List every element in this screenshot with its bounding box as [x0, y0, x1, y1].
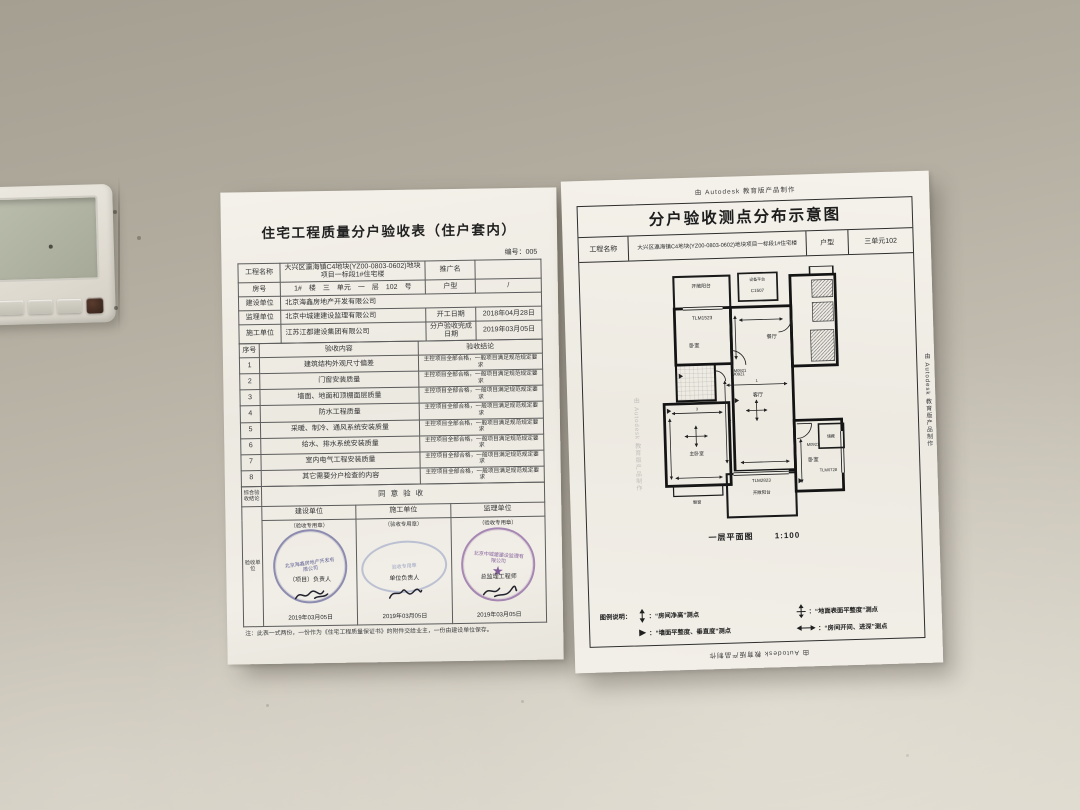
item-no: 6: [241, 438, 261, 454]
seal-note: （验收专用章）: [453, 520, 542, 528]
room-label-balcony-top: 开敞阳台: [691, 282, 711, 290]
photo-scene: 住宅工程质量分户验收表（住户套内） 编号：005 工程名称 大兴区瀛海镇C4地块…: [0, 0, 1080, 810]
span-arrow: [725, 381, 727, 463]
builder-sign-cell: （验收专用章） 北京海鑫房地产开发有限公司 （项目）负责人 2019年03月05…: [262, 519, 358, 626]
floorplan-svg: 开敞阳台 TLM1523 卧室 M0921 设备平台 C1507 餐厅 客厅 M…: [638, 265, 862, 530]
plan-scale: 1:100: [775, 531, 801, 541]
measurement-plan-document: 由 Autodesk 教育版产品制作 分户验收测点分布示意图 工程名称 大兴区瀛…: [561, 171, 943, 674]
item-no: 4: [240, 406, 260, 422]
unit-col-builder: 建设单位: [262, 505, 357, 520]
legend-text: ：“房间净高”测点: [649, 610, 700, 620]
measure-num: 1: [756, 379, 758, 383]
room-height-symbol-icon: [637, 608, 646, 623]
legend-title: 图例说明：: [600, 611, 638, 621]
room-label-dining: 餐厅: [766, 332, 777, 340]
balcony-top-outline: [673, 276, 730, 310]
signature: [292, 586, 330, 605]
plan-type-label: 户型: [806, 230, 849, 255]
wall-seam: [118, 176, 120, 332]
plan-type-value: 三单元102: [848, 228, 913, 254]
summary-label: 综合验收结论: [241, 486, 261, 506]
floorplan-area: 开敞阳台 TLM1523 卧室 M0921 设备平台 C1507 餐厅 客厅 M…: [580, 263, 925, 647]
col-header-no: 序号: [239, 344, 259, 358]
form-footnote: 注：此表一式两份，一份作为《住宅工程质量保证书》的附件交给业主，一份由建设单位保…: [245, 627, 545, 639]
span-arrow: [741, 461, 789, 462]
start-date-label: 开工日期: [426, 307, 476, 322]
wall-speck: [137, 236, 141, 240]
thermostat-button: [28, 299, 53, 314]
span-arrow: [727, 383, 787, 385]
span-arrow: [670, 419, 672, 479]
supervisor-label: 监理单位: [239, 310, 281, 325]
legend-text: ：“地面表面平整度”测点: [808, 604, 878, 615]
finish-date-label: 分户验收完成日期: [426, 321, 476, 341]
signer-role: 总监理工程师: [452, 574, 545, 582]
door-arc: [778, 319, 791, 332]
project-name-value: 大兴区瀛海镇C4地块(YZ00-0803-0602)地块项目一标段1#住宅楼: [280, 261, 425, 282]
item-no: 8: [241, 470, 261, 486]
wall-speck: [906, 754, 909, 757]
sign-date: 2019年03月05日: [453, 612, 546, 620]
door-label-m0921: M0921: [732, 371, 745, 376]
item-result: 主控项目全部合格，一般项目满足规范规定要求: [418, 353, 542, 371]
thermostat-buttons: [0, 296, 104, 317]
plan-project-value: 大兴区瀛海镇C4地块(YZ00-0803-0602)地块项目一标段1#住宅楼: [628, 231, 807, 260]
contractor-sign-cell: （验收专用章） 验收专用章 单位负责人 2019年03月05日: [356, 518, 452, 625]
window-label-tlm2823: TLM2823: [752, 478, 772, 484]
legend-text: ：“墙面平整度、垂直度”测点: [649, 626, 731, 637]
thermostat-button: [0, 300, 23, 315]
item-no: 2: [240, 374, 260, 390]
room-no-label: 房号: [238, 282, 280, 297]
units-label: 验收单位: [242, 506, 264, 626]
item-no: 7: [241, 454, 261, 470]
item-result: 主控项目全部合格，一般项目满足规范规定要求: [419, 402, 543, 420]
unit-col-supervisor: 监理单位: [450, 502, 545, 517]
builder-label: 建设单位: [238, 296, 280, 311]
floor-flatness-symbol-icon: [795, 603, 806, 618]
floor-point-cross: [696, 426, 697, 447]
wall-speck: [266, 704, 269, 707]
thermostat-button: [57, 298, 82, 313]
stamp-text: 北京海鑫房地产开发有限公司: [274, 555, 345, 577]
wall-screw: [114, 306, 118, 310]
measure-num: 2: [729, 419, 731, 423]
measure-num: 3: [696, 407, 698, 411]
acceptance-form-document: 住宅工程质量分户验收表（住户套内） 编号：005 工程名称 大兴区瀛海镇C4地块…: [220, 187, 563, 664]
plan-legend: 图例说明： ：“房间净高”测点: [599, 595, 918, 638]
signer-role: 单位负责人: [358, 575, 451, 583]
item-no: 3: [240, 390, 260, 406]
item-result: 主控项目全部合格，一般项目满足规范规定要求: [419, 369, 543, 387]
sign-date: 2019年03月05日: [358, 613, 451, 621]
thermostat-power-button: [86, 297, 103, 313]
seal-note: （验收专用章）: [265, 523, 354, 531]
bathroom-outline: [676, 364, 716, 401]
plan-caption-text: 一层平面图: [708, 532, 753, 542]
room-label-master: 主卧室: [689, 450, 704, 457]
stamp-text: 验收专用章: [383, 562, 426, 572]
window-label-tlm1523: TLM1523: [692, 315, 713, 322]
room-label-bedroom-r: 卧室: [808, 455, 819, 463]
contractor-label: 施工单位: [239, 324, 281, 344]
room-span-symbol-icon: [796, 623, 816, 633]
autodesk-watermark-bottom: 由 Autodesk 教育版产品制作: [575, 644, 943, 665]
form-title: 住宅工程质量分户验收表（住户套内）: [237, 218, 541, 243]
door-label-m0921: M0921: [807, 442, 820, 447]
floor-point-cross: [756, 400, 757, 421]
span-arrow: [676, 477, 723, 478]
span-arrow: [801, 439, 802, 482]
promo-name-label: 推广名: [425, 260, 475, 280]
unit-type-value: /: [475, 278, 541, 293]
form-info-table: 工程名称 大兴区瀛海镇C4地块(YZ00-0803-0602)地块项目一标段1#…: [237, 259, 542, 345]
form-signoff-table: 综合验收结论 同意验收 验收单位 建设单位 施工单位 监理单位 （验收专用章） …: [241, 482, 547, 628]
unit-type-label: 户型: [425, 279, 475, 294]
door-arc: [715, 371, 726, 382]
window-label-c1507: C1507: [751, 288, 765, 293]
item-result: 主控项目全部合格，一般项目满足规范规定要求: [420, 434, 544, 452]
project-name-label: 工程名称: [238, 263, 280, 283]
plan-caption: 一层平面图 1:100: [587, 526, 921, 547]
window-label-tlm0728: TLM0728: [820, 467, 838, 473]
wall-screw: [113, 210, 117, 214]
signer-role: （项目）负责人: [263, 577, 356, 585]
span-arrow: [672, 412, 722, 413]
plan-sheet-frame: 分户验收测点分布示意图 工程名称 大兴区瀛海镇C4地块(YZ00-0803-06…: [577, 196, 926, 648]
supervisor-sign-cell: （验收专用章） 北京中城建建设监理有限公司 ★ 总监理工程师 2019年03月0…: [451, 516, 547, 623]
item-result: 主控项目全部合格，一般项目满足规范规定要求: [420, 450, 544, 468]
master-bedroom-outline: [664, 402, 731, 486]
signature: [386, 584, 424, 603]
thermostat-screen: [0, 195, 100, 283]
item-no: 1: [239, 358, 259, 374]
wall-flatness-symbol-icon: [638, 628, 647, 637]
item-no: 5: [240, 422, 260, 438]
living-dining-outline: [730, 306, 795, 472]
room-label-living: 客厅: [753, 390, 764, 398]
promo-name-value: [475, 259, 541, 279]
form-items-table: 序号 验收内容 验收结论 1 建筑结构外观尺寸偏差 主控项目全部合格，一般项目满…: [239, 339, 545, 488]
label-storage: 储藏: [827, 433, 835, 438]
item-result: 主控项目全部合格，一般项目满足规范规定要求: [419, 418, 543, 436]
unit-col-contractor: 施工单位: [356, 504, 451, 519]
legend-text: ：“房间开间、进深”测点: [818, 621, 888, 632]
start-date-value: 2018年04月28日: [476, 306, 542, 321]
label-bay-window: 飘窗: [693, 499, 701, 505]
item-result: 主控项目全部合格，一般项目满足规范规定要求: [419, 386, 543, 404]
room-label-equip: 设备平台: [749, 276, 765, 281]
thermostat-screen-mark: [49, 245, 53, 249]
plan-project-label: 工程名称: [578, 237, 629, 262]
door-arc: [797, 423, 812, 438]
thermostat-device: [0, 184, 116, 326]
span-arrow: [735, 316, 736, 359]
seal-note: （验收专用章）: [359, 521, 448, 529]
stamp-text: 北京中城建建设监理有限公司: [464, 549, 535, 566]
wall-speck: [521, 700, 524, 703]
autodesk-watermark-right: 由 Autodesk 教育版产品制作: [922, 353, 934, 448]
room-label-balcony-bottom: 开敞阳台: [753, 489, 772, 497]
room-label-bedroom-tl: 卧室: [689, 341, 700, 349]
span-arrow: [739, 319, 782, 320]
signature: [481, 583, 519, 602]
finish-date-value: 2019年03月05日: [476, 320, 542, 340]
sign-date: 2019年03月05日: [264, 615, 357, 623]
